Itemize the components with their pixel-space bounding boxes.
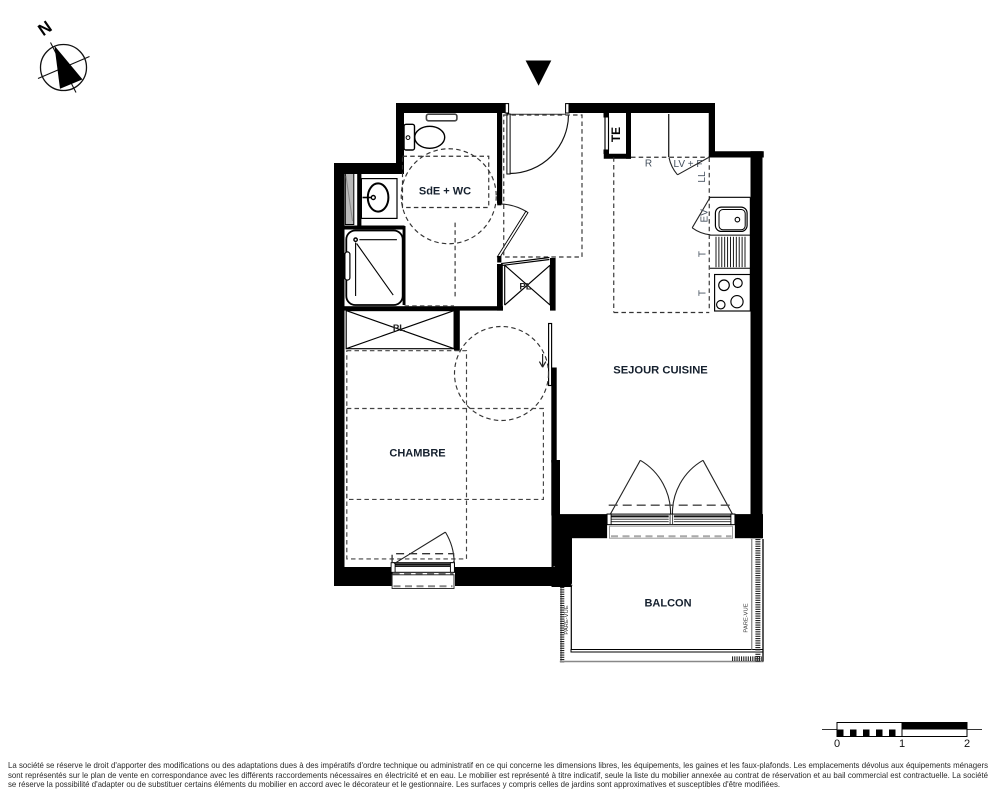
- svg-text:N: N: [35, 17, 56, 40]
- svg-text:PL: PL: [393, 323, 405, 334]
- svg-text:SdE + WC: SdE + WC: [419, 186, 471, 198]
- svg-text:LL: LL: [697, 171, 708, 183]
- svg-text:0: 0: [834, 738, 840, 750]
- svg-text:R: R: [645, 159, 652, 170]
- svg-text:TE: TE: [609, 127, 623, 142]
- svg-text:2: 2: [964, 738, 970, 750]
- svg-text:EV: EV: [699, 209, 710, 223]
- svg-text:1: 1: [899, 738, 905, 750]
- svg-text:T: T: [697, 290, 708, 296]
- svg-text:T: T: [697, 251, 708, 257]
- svg-text:BALCON: BALCON: [644, 597, 691, 609]
- svg-text:CHAMBRE: CHAMBRE: [389, 448, 445, 460]
- svg-text:PL: PL: [519, 282, 531, 293]
- svg-text:PARE-VUE: PARE-VUE: [743, 603, 749, 632]
- svg-text:SEJOUR CUISINE: SEJOUR CUISINE: [613, 365, 708, 377]
- svg-text:PARE-VUE: PARE-VUE: [564, 605, 570, 634]
